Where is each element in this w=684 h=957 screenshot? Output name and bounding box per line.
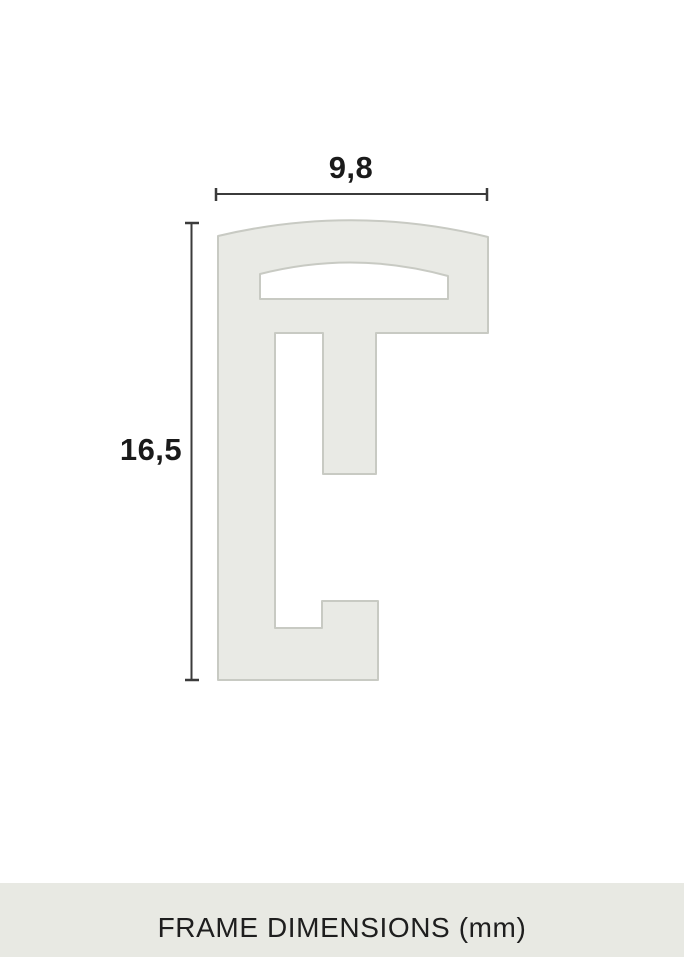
width-dimension-label: 9,8 [329,150,374,185]
height-dimension-label: 16,5 [120,432,182,467]
caption-band: FRAME DIMENSIONS (mm) [0,883,684,957]
caption-text: FRAME DIMENSIONS (mm) [158,914,527,942]
frame-dimensions-figure: 9,8 16,5 FRAME DIMENSIONS (mm) [0,0,684,957]
width-dimension [216,188,487,201]
frame-profile-shape [218,220,488,680]
height-dimension [185,223,199,680]
profile-diagram: 9,8 16,5 [0,0,684,883]
